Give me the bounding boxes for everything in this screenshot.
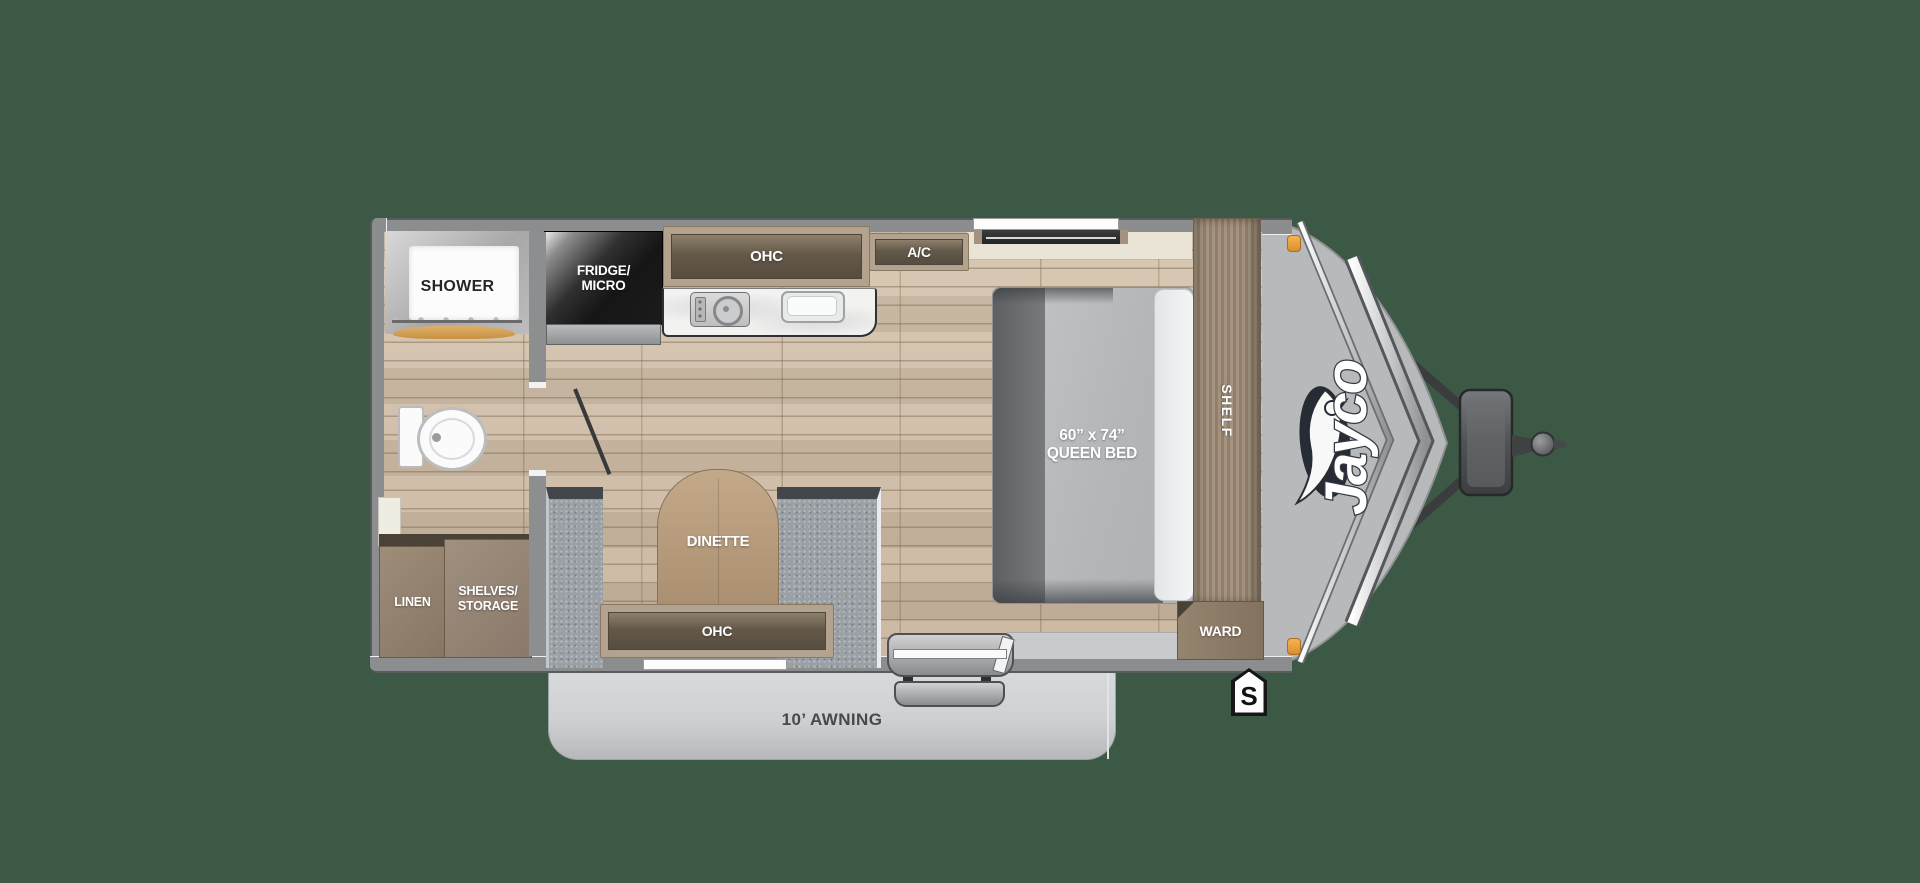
bathroom-wall-upper — [529, 232, 546, 388]
toilet-flush-button — [432, 433, 441, 442]
awning-label: 10’ AWNING — [549, 671, 1115, 730]
propane-box-highlight — [1467, 398, 1505, 487]
shelves-storage-cabinet: SHELVES/ STORAGE — [444, 539, 532, 658]
bed-label: 60” x 74” QUEEN BED — [992, 287, 1192, 602]
ac-label: A/C — [907, 244, 931, 260]
bathroom-wall-lower — [529, 470, 546, 656]
kitchen-ohc-label: OHC — [750, 248, 783, 265]
linen-cabinet: LINEN — [379, 546, 446, 658]
linen-label: LINEN — [394, 595, 431, 610]
entry-threshold — [893, 649, 1007, 659]
kitchen-sink — [781, 291, 845, 323]
fridge-label-line1: FRIDGE/ — [577, 263, 630, 279]
fridge-micro: FRIDGE/ MICRO — [544, 231, 663, 325]
kitchen-overhead-cabinet: OHC — [663, 226, 870, 287]
awning: 10’ AWNING — [548, 670, 1116, 760]
window-valance — [974, 230, 1128, 244]
front-cap: Jayco — [1240, 210, 1580, 680]
entry-step-lower — [894, 681, 1005, 707]
awning-fold-line — [1107, 671, 1109, 759]
clearance-light-bottom — [1287, 638, 1301, 655]
jayco-wordmark: Jayco — [1314, 360, 1379, 515]
dinette-ohc-label: OHC — [702, 623, 733, 639]
toilet — [417, 407, 487, 471]
fridge-label-line2: MICRO — [582, 278, 626, 294]
shower-label: SHOWER — [421, 278, 495, 296]
floorplan-stage: 10’ AWNING — [0, 0, 1920, 883]
sink-basin — [787, 296, 837, 316]
stove-controls — [695, 297, 706, 322]
shelves-label-line1: SHELVES/ — [458, 584, 517, 599]
coupler-latch — [1554, 439, 1567, 450]
stove-burner — [713, 296, 743, 326]
dinette-label: DINETTE — [687, 533, 750, 550]
bedroom-window — [973, 218, 1119, 230]
bed-label-line1: 60” x 74” — [1059, 427, 1124, 445]
wardrobe: WARD — [1177, 601, 1264, 660]
dinette-window — [643, 659, 787, 670]
bath-mat — [393, 326, 515, 339]
stove-cooktop — [690, 292, 750, 327]
hitch-ball-coupler — [1532, 433, 1555, 456]
bed-label-line2: QUEEN BED — [1047, 445, 1137, 463]
fridge-lower-drawer — [546, 324, 661, 345]
spare-marker-letter: S — [1231, 681, 1267, 712]
dinette-table: DINETTE — [657, 469, 779, 613]
shelf-label: SHELF — [1219, 384, 1235, 437]
air-conditioner: A/C — [869, 233, 969, 271]
bed-foot-bench — [1007, 632, 1177, 659]
dinette-overhead-cabinet: OHC — [600, 604, 834, 658]
shower-curtain-rod — [392, 320, 522, 323]
shelves-label-line2: STORAGE — [458, 599, 518, 614]
clearance-light-top — [1287, 235, 1301, 252]
ward-label: WARD — [1200, 623, 1242, 639]
dinette-bench-left — [546, 487, 603, 668]
shelf: SHELF — [1193, 218, 1261, 604]
